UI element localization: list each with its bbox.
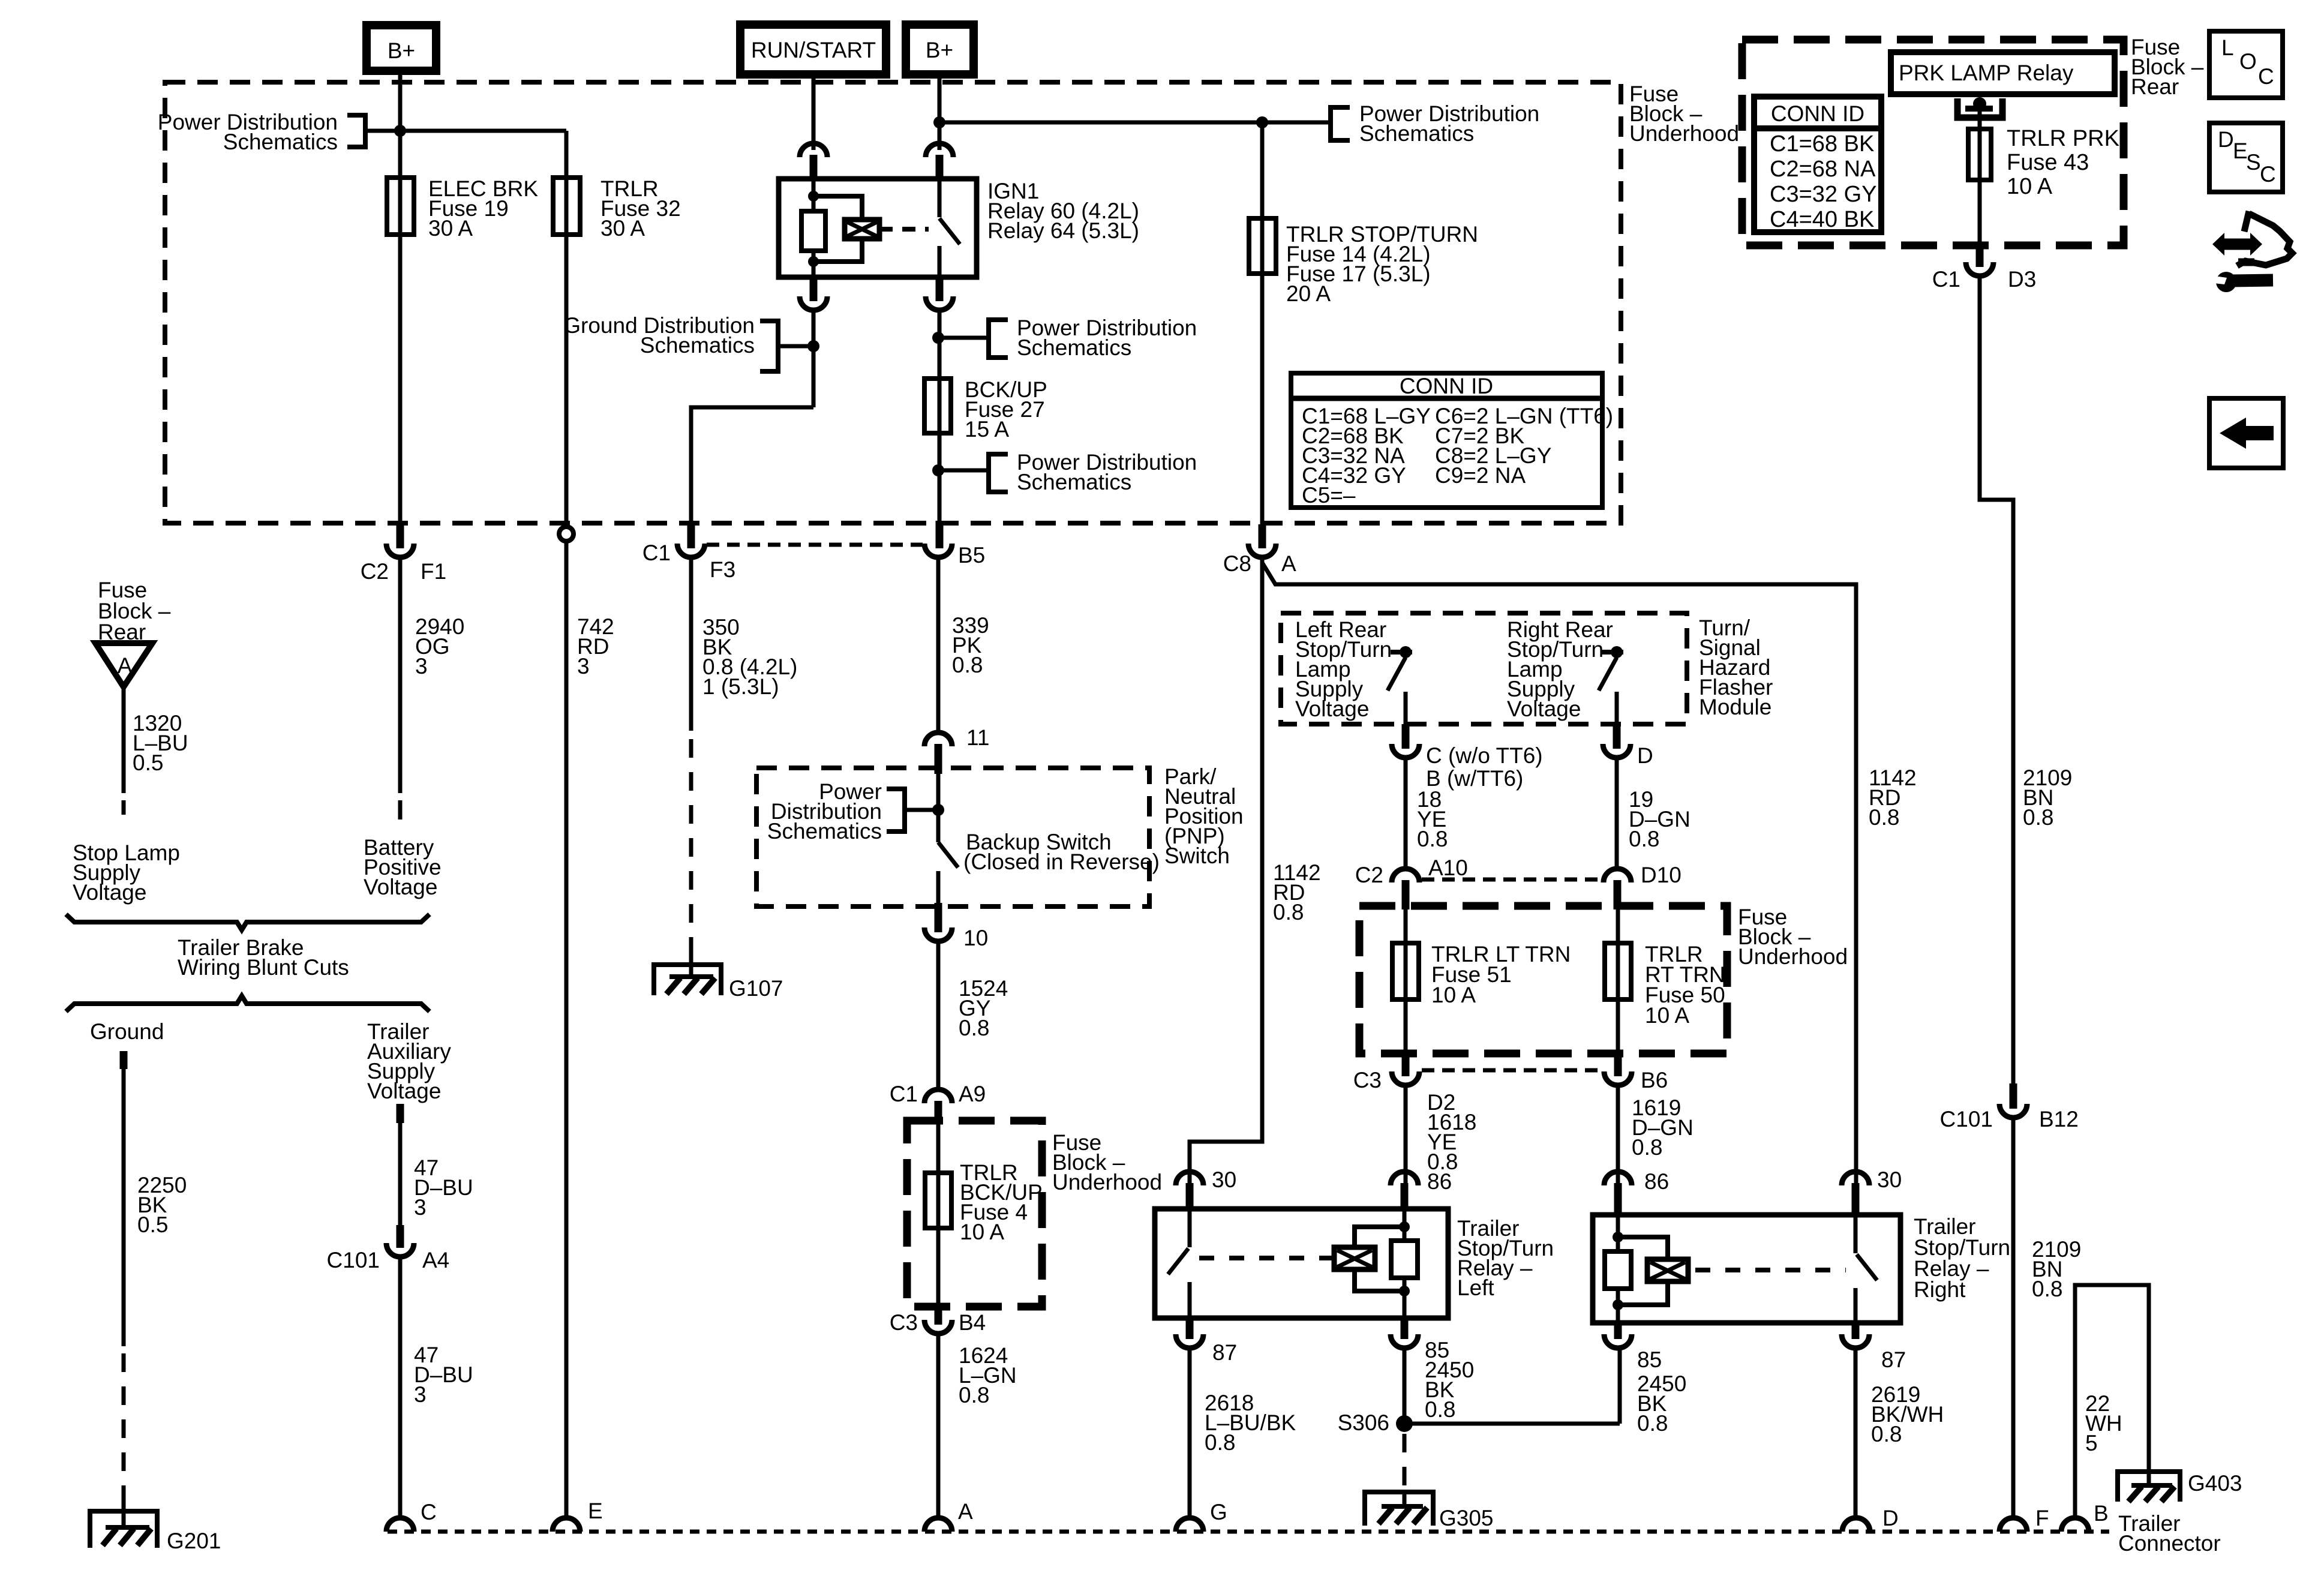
svg-text:E: E	[2233, 139, 2248, 163]
svg-text:Underhood: Underhood	[1052, 1170, 1162, 1194]
svg-text:11: 11	[966, 725, 989, 750]
svg-text:CONN ID: CONN ID	[1771, 101, 1864, 126]
svg-text:C (w/o TT6): C (w/o TT6)	[1426, 743, 1543, 768]
svg-text:Rear: Rear	[2131, 74, 2179, 99]
svg-text:B+: B+	[926, 38, 953, 62]
svg-text:5: 5	[2085, 1431, 2098, 1455]
svg-text:A: A	[958, 1499, 973, 1524]
svg-text:0.8: 0.8	[1273, 900, 1304, 924]
svg-text:0.8: 0.8	[1637, 1411, 1668, 1436]
svg-text:D: D	[2218, 127, 2234, 152]
svg-text:RUN/START: RUN/START	[751, 38, 876, 62]
svg-text:30 A: 30 A	[600, 216, 645, 241]
svg-text:F: F	[2035, 1506, 2049, 1530]
svg-text:0.8: 0.8	[1869, 805, 1899, 830]
svg-text:10 A: 10 A	[1645, 1003, 1689, 1028]
svg-text:Module: Module	[1699, 695, 1771, 719]
svg-text:3: 3	[415, 654, 428, 679]
svg-text:F1: F1	[421, 559, 446, 584]
svg-text:1 (5.3L): 1 (5.3L)	[702, 674, 779, 699]
svg-text:30 A: 30 A	[428, 216, 473, 241]
svg-text:86: 86	[1644, 1169, 1669, 1194]
svg-text:0.5: 0.5	[137, 1212, 168, 1237]
svg-text:A: A	[1281, 551, 1296, 576]
svg-text:C3=32 GY: C3=32 GY	[1770, 182, 1877, 207]
svg-text:Right: Right	[1914, 1277, 1966, 1302]
svg-text:30: 30	[1877, 1167, 1902, 1192]
svg-text:Schematics: Schematics	[767, 819, 882, 843]
svg-text:C3: C3	[1353, 1068, 1382, 1092]
svg-text:Underhood: Underhood	[1629, 121, 1739, 146]
svg-text:G305: G305	[1439, 1506, 1494, 1530]
svg-text:87: 87	[1881, 1347, 1906, 1372]
svg-text:G: G	[1210, 1500, 1227, 1524]
svg-text:C3: C3	[890, 1310, 918, 1335]
svg-text:A: A	[118, 653, 133, 678]
svg-text:D: D	[1637, 743, 1653, 768]
svg-text:0.8: 0.8	[1632, 1135, 1662, 1160]
svg-text:(Closed in Reverse): (Closed in Reverse)	[963, 849, 1160, 874]
svg-text:C101: C101	[1940, 1107, 1993, 1131]
svg-text:86: 86	[1427, 1169, 1452, 1194]
svg-text:G201: G201	[167, 1529, 221, 1553]
svg-text:Schematics: Schematics	[1017, 335, 1131, 360]
svg-text:0.8: 0.8	[959, 1016, 989, 1040]
svg-text:E: E	[588, 1499, 603, 1523]
svg-text:F3: F3	[710, 557, 735, 582]
svg-text:Schematics: Schematics	[640, 333, 755, 358]
svg-text:0.8: 0.8	[1417, 827, 1448, 851]
svg-text:Relay 64 (5.3L): Relay 64 (5.3L)	[987, 218, 1139, 243]
svg-text:C: C	[2260, 162, 2276, 187]
svg-text:G107: G107	[729, 976, 783, 1001]
svg-text:Left: Left	[1457, 1275, 1494, 1300]
svg-text:C1: C1	[890, 1082, 918, 1106]
svg-text:S306: S306	[1338, 1410, 1389, 1435]
svg-text:C101: C101	[327, 1248, 380, 1272]
svg-text:Connector: Connector	[2118, 1531, 2221, 1556]
svg-text:15 A: 15 A	[965, 417, 1009, 442]
svg-text:B: B	[2094, 1501, 2109, 1526]
svg-text:C1: C1	[1932, 267, 1960, 292]
svg-text:A9: A9	[959, 1082, 986, 1106]
svg-text:3: 3	[414, 1382, 427, 1407]
svg-text:D10: D10	[1641, 863, 1682, 887]
svg-text:0.8: 0.8	[1205, 1430, 1235, 1455]
svg-text:C9=2 NA: C9=2 NA	[1435, 463, 1526, 488]
svg-text:20 A: 20 A	[1286, 281, 1331, 306]
svg-text:C2=68 NA: C2=68 NA	[1770, 157, 1876, 182]
svg-text:C4=40 BK: C4=40 BK	[1770, 207, 1874, 232]
svg-text:10 A: 10 A	[960, 1220, 1004, 1244]
svg-text:0.8: 0.8	[2032, 1277, 2062, 1301]
svg-text:B5: B5	[958, 543, 985, 568]
svg-text:B12: B12	[2039, 1107, 2079, 1131]
svg-text:D3: D3	[2008, 267, 2036, 292]
svg-text:Schematics: Schematics	[1359, 121, 1474, 146]
svg-text:C2: C2	[1355, 863, 1383, 887]
svg-text:Voltage: Voltage	[1507, 697, 1581, 721]
svg-text:CONN ID: CONN ID	[1400, 374, 1493, 398]
svg-text:3: 3	[577, 654, 590, 679]
svg-text:Fuse 43: Fuse 43	[2007, 150, 2089, 175]
svg-text:Voltage: Voltage	[367, 1079, 441, 1103]
svg-text:Ground: Ground	[90, 1019, 164, 1044]
svg-text:10: 10	[963, 926, 988, 950]
svg-text:C: C	[2258, 64, 2274, 89]
svg-text:0.8: 0.8	[2023, 805, 2053, 830]
svg-text:Schematics: Schematics	[223, 130, 338, 154]
svg-text:Voltage: Voltage	[73, 880, 146, 905]
svg-text:10 A: 10 A	[2007, 174, 2053, 199]
svg-text:85: 85	[1637, 1347, 1662, 1372]
svg-text:Voltage: Voltage	[364, 875, 437, 899]
svg-text:S: S	[2246, 150, 2261, 175]
svg-text:0.8: 0.8	[952, 653, 983, 677]
svg-text:0.8: 0.8	[1629, 827, 1659, 851]
svg-text:C8: C8	[1223, 551, 1251, 576]
svg-text:87: 87	[1212, 1340, 1237, 1365]
svg-text:Switch: Switch	[1164, 843, 1230, 868]
svg-text:Voltage: Voltage	[1295, 697, 1369, 721]
svg-text:0.5: 0.5	[133, 751, 163, 775]
svg-text:G403: G403	[2188, 1471, 2242, 1496]
svg-text:C: C	[421, 1500, 437, 1524]
svg-text:0.8: 0.8	[959, 1383, 989, 1407]
svg-text:B4: B4	[959, 1310, 986, 1335]
svg-text:Schematics: Schematics	[1017, 470, 1131, 494]
svg-text:PRK LAMP Relay: PRK LAMP Relay	[1899, 61, 2074, 85]
svg-text:B6: B6	[1641, 1068, 1668, 1092]
svg-text:O: O	[2239, 49, 2257, 74]
svg-text:B+: B+	[388, 38, 415, 63]
svg-text:10 A: 10 A	[1431, 983, 1476, 1007]
svg-text:Wiring Blunt Cuts: Wiring Blunt Cuts	[178, 955, 349, 980]
svg-text:A4: A4	[422, 1248, 449, 1272]
svg-text:C1=68 BK: C1=68 BK	[1770, 131, 1874, 157]
svg-text:30: 30	[1212, 1167, 1236, 1192]
svg-text:C5=–: C5=–	[1302, 483, 1356, 508]
svg-text:C1: C1	[642, 541, 671, 565]
svg-text:L: L	[2221, 35, 2234, 60]
svg-text:0.8: 0.8	[1871, 1422, 1902, 1446]
svg-text:TRLR PRK: TRLR PRK	[2007, 126, 2119, 151]
svg-text:C2: C2	[361, 559, 389, 584]
svg-text:Underhood: Underhood	[1738, 944, 1848, 969]
svg-text:3: 3	[414, 1195, 427, 1220]
svg-text:A10: A10	[1428, 855, 1468, 880]
svg-text:0.8: 0.8	[1425, 1397, 1455, 1422]
svg-text:D: D	[1882, 1506, 1899, 1530]
